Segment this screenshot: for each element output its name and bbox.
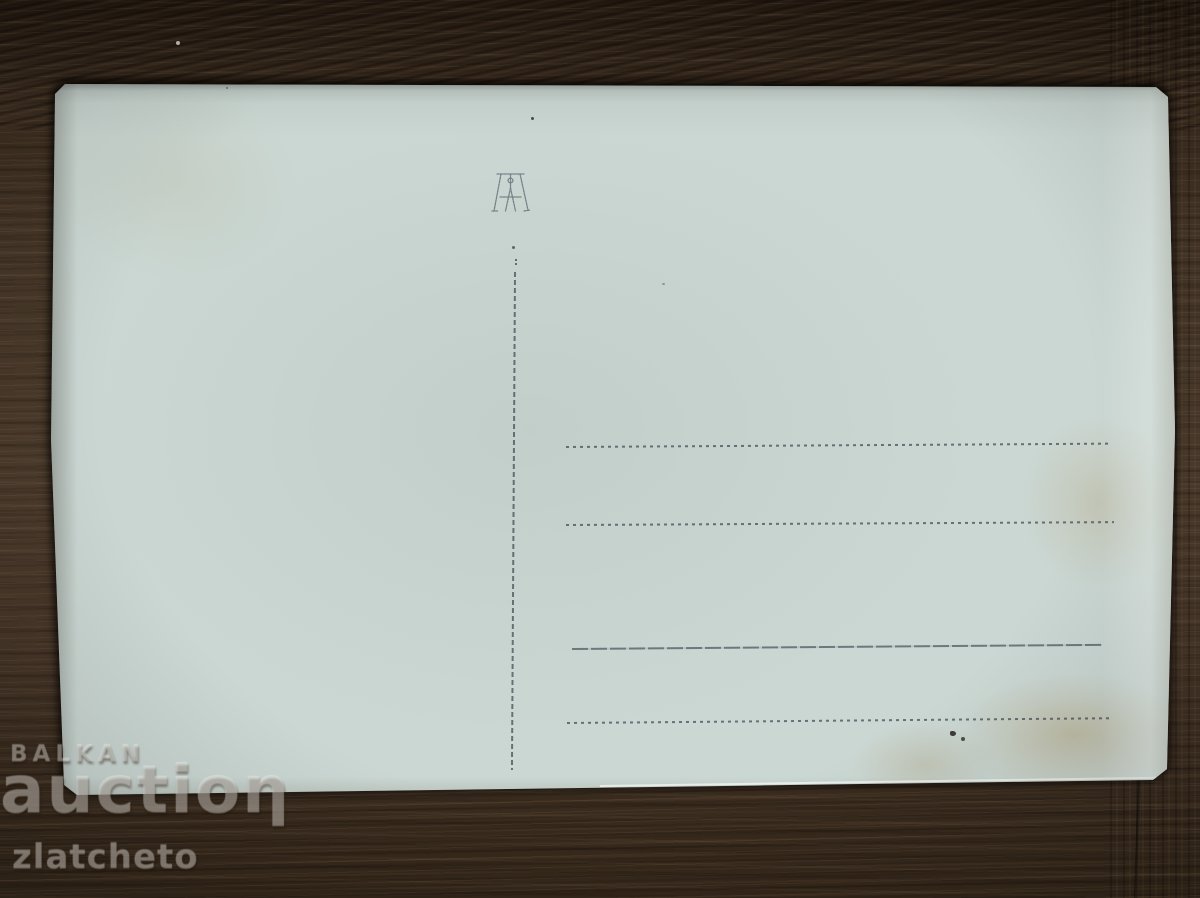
postcard-shadow: [0, 0, 1200, 898]
address-line-1: [566, 443, 1109, 448]
address-line-3: [572, 644, 1102, 650]
ink-speck: [950, 731, 956, 736]
ink-speck: [662, 283, 665, 285]
postcard-back: [0, 0, 1200, 898]
divider-dot: [512, 246, 515, 249]
postcard-divider-line: [511, 272, 516, 770]
publisher-monogram-icon: [490, 167, 532, 219]
photo-scene: BALKAN auctioƞ zlatcheto: [0, 0, 1200, 898]
address-line-4: [567, 717, 1112, 724]
card-bottom-edge-highlight: [600, 777, 1160, 787]
address-line-2: [566, 521, 1114, 526]
ink-speck: [531, 117, 534, 120]
ink-speck: [226, 87, 228, 89]
ink-speck: [961, 737, 965, 741]
divider-tick: [515, 259, 517, 265]
